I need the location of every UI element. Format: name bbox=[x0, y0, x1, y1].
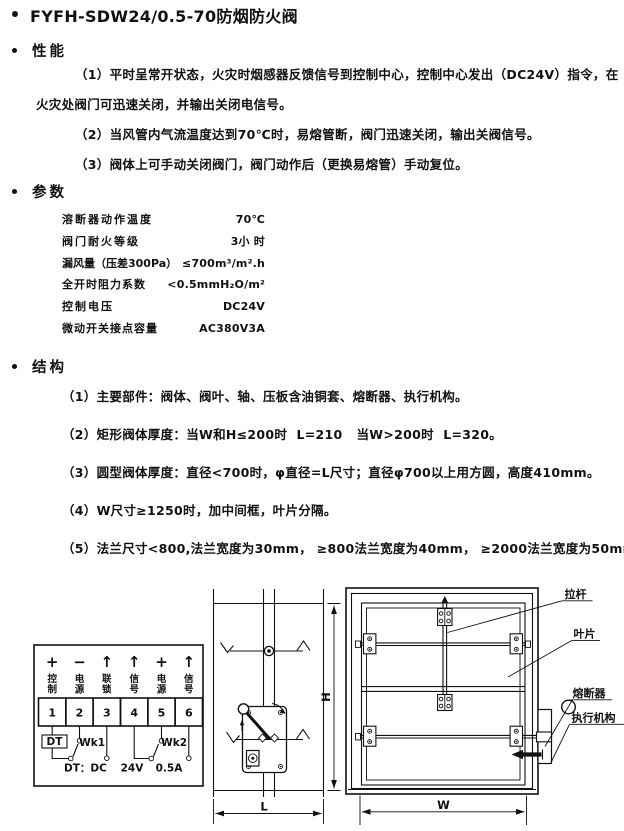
valve-front-view: 拉杆 叶片 熔断器 执行机构 W bbox=[346, 587, 624, 825]
terminal-label: 电源 bbox=[75, 673, 85, 695]
pull-rod-pin bbox=[442, 596, 448, 603]
terminal-number: 3 bbox=[103, 707, 111, 720]
datasheet-page: FYFH-SDW24/0.5-70防烟防火阀 性能 （1）平时呈常开状态，火灾时… bbox=[0, 0, 624, 831]
parameter-label: 控制电压 bbox=[62, 298, 114, 314]
contact-point bbox=[69, 756, 74, 761]
parameter-label: 漏风量（压差300Pa） bbox=[62, 255, 177, 271]
terminal-number: 1 bbox=[48, 707, 56, 720]
terminal-symbol: ↑ bbox=[101, 653, 114, 671]
callout-blade: 叶片 bbox=[574, 627, 596, 641]
parameter-row: 控制电压 DC24V bbox=[62, 298, 265, 320]
terminal-symbol: − bbox=[73, 653, 86, 671]
section-bullet-icon bbox=[12, 48, 17, 53]
shaft-collar bbox=[537, 732, 552, 742]
parameter-row: 微动开关接点容量 AC380V3A bbox=[62, 320, 265, 342]
parameter-label: 全开时阻力系数 bbox=[62, 276, 146, 292]
parameter-value: 3小 时 bbox=[231, 233, 265, 249]
terminal-number: 5 bbox=[158, 707, 166, 720]
shaft-stub bbox=[356, 641, 361, 647]
section-bullet-icon bbox=[12, 189, 17, 194]
blade-end-bend bbox=[297, 730, 310, 740]
callout-pull-rod: 拉杆 bbox=[565, 587, 587, 601]
structure-item: （1）主要部件：阀体、阀叶、轴、压板含油铜套、熔断器、执行机构。 bbox=[62, 386, 468, 405]
structure-item: （3）圆型阀体厚度：直径<700时，φ直径=L尺寸；直径φ700以上用方圆，高度… bbox=[62, 462, 600, 481]
wk1-label: Wk1 bbox=[79, 737, 105, 749]
section-heading-structure: 结构 bbox=[32, 356, 67, 377]
blade-shaft-pin bbox=[267, 649, 271, 653]
section-heading-parameters: 参数 bbox=[32, 181, 67, 202]
voltage-note: 24V bbox=[121, 763, 145, 775]
dim-witness-lines bbox=[214, 799, 324, 824]
dim-label-depth: L bbox=[260, 800, 268, 814]
parameter-row: 阀门耐火等级 3小 时 bbox=[62, 233, 265, 255]
parameter-table: 溶断器动作温度 70℃ 阀门耐火等级 3小 时 漏风量（压差300Pa） ≤70… bbox=[62, 211, 265, 342]
spring-arrow-head bbox=[512, 750, 524, 759]
performance-line: （1）平时呈常开状态，火灾时烟感器反馈信号到控制中心，控制中心发出（DC24V）… bbox=[75, 64, 619, 83]
callout-fuse: 熔断器 bbox=[573, 686, 607, 700]
terminal-symbol: + bbox=[155, 653, 168, 671]
shaft-bearing-bracket bbox=[510, 726, 522, 746]
shaft-stub bbox=[526, 641, 531, 647]
wk2-label: Wk2 bbox=[161, 737, 187, 749]
terminal-number: 6 bbox=[185, 707, 193, 720]
parameter-row: 溶断器动作温度 70℃ bbox=[62, 211, 265, 233]
title-bullet-icon bbox=[12, 11, 18, 17]
pull-rod-bracket-mid bbox=[438, 695, 452, 711]
terminal-number: 4 bbox=[130, 707, 138, 720]
parameter-value: <0.5mmH₂O/m² bbox=[167, 278, 265, 291]
dim-label-height: H bbox=[319, 692, 333, 702]
blade-end-bend bbox=[297, 641, 310, 651]
terminal-symbol: ↑ bbox=[128, 653, 141, 671]
structure-item: （5）法兰尺寸<800,法兰宽度为30mm， ≥800法兰宽度为40mm， ≥2… bbox=[62, 538, 624, 557]
contact-point bbox=[149, 756, 154, 761]
performance-line: （2）当风管内气流温度达到70℃时，易熔管断，阀门迅速关闭，输出关阀信号。 bbox=[75, 124, 540, 143]
shaft-stub bbox=[356, 734, 361, 740]
contact-point bbox=[105, 756, 110, 761]
contact-point bbox=[187, 756, 192, 761]
terminal-label: 电源 bbox=[157, 673, 167, 695]
terminal-label: 信号 bbox=[129, 673, 139, 695]
parameter-value: ≤700m³/m².h bbox=[182, 257, 265, 270]
callout-leader bbox=[551, 724, 624, 762]
performance-line: 火灾处阀门可迅速关闭，并输出关闭电信号。 bbox=[36, 94, 292, 113]
parameter-value: 70℃ bbox=[236, 213, 265, 226]
pull-rod-bracket-top bbox=[438, 609, 452, 626]
terminal-label: 控制 bbox=[47, 673, 57, 695]
parameter-label: 溶断器动作温度 bbox=[62, 211, 153, 227]
parameter-row: 全开时阻力系数 <0.5mmH₂O/m² bbox=[62, 276, 265, 298]
terminal-label: 联锁 bbox=[102, 673, 112, 695]
parameter-label: 阀门耐火等级 bbox=[62, 233, 140, 249]
shaft-bearing-bracket bbox=[364, 634, 376, 654]
page-title: FYFH-SDW24/0.5-70防烟防火阀 bbox=[30, 3, 298, 27]
dt-dc-note: DT：DC bbox=[64, 763, 107, 775]
current-note: 0.5A bbox=[156, 763, 184, 775]
shaft-bearing-bracket bbox=[364, 726, 376, 746]
shaft-bearing-bracket bbox=[510, 634, 522, 654]
terminal-number: 2 bbox=[76, 707, 84, 720]
terminal-symbol: ↑ bbox=[183, 653, 196, 671]
terminal-label: 信号 bbox=[184, 673, 194, 695]
parameter-row: 漏风量（压差300Pa） ≤700m³/m².h bbox=[62, 255, 265, 277]
lever-knob bbox=[238, 704, 248, 714]
structure-item: （2）矩形阀体厚度：当W和H≤200时 L=210 当W>200时 L=320。 bbox=[62, 424, 502, 443]
parameter-value: AC380V3A bbox=[199, 322, 265, 335]
blade-end-bend bbox=[227, 732, 240, 743]
performance-line: （3）阀体上可手动关闭阀门，阀门动作后（更换易熔管）手动复位。 bbox=[75, 154, 468, 173]
parameter-value: DC24V bbox=[223, 300, 265, 313]
parameter-label: 微动开关接点容量 bbox=[62, 320, 158, 336]
dt-relay-label: DT bbox=[47, 736, 64, 748]
fuse-holder-pin bbox=[251, 757, 254, 760]
section-bullet-icon bbox=[12, 364, 17, 369]
section-heading-performance: 性能 bbox=[32, 40, 67, 61]
dim-label-width: W bbox=[437, 798, 450, 812]
callout-actuator: 执行机构 bbox=[572, 710, 616, 724]
technical-drawings: + − ↑ ↑ + ↑ 控制 电源 联锁 信号 电源 信号 1 2 3 4 5 … bbox=[0, 580, 624, 831]
structure-item: （4）W尺寸≥1250时，加中间框，叶片分隔。 bbox=[62, 500, 337, 519]
valve-side-view: L H bbox=[214, 589, 341, 824]
terminal-wiring-diagram: + − ↑ ↑ + ↑ 控制 电源 联锁 信号 电源 信号 1 2 3 4 5 … bbox=[34, 645, 203, 786]
terminal-symbol: + bbox=[46, 653, 59, 671]
